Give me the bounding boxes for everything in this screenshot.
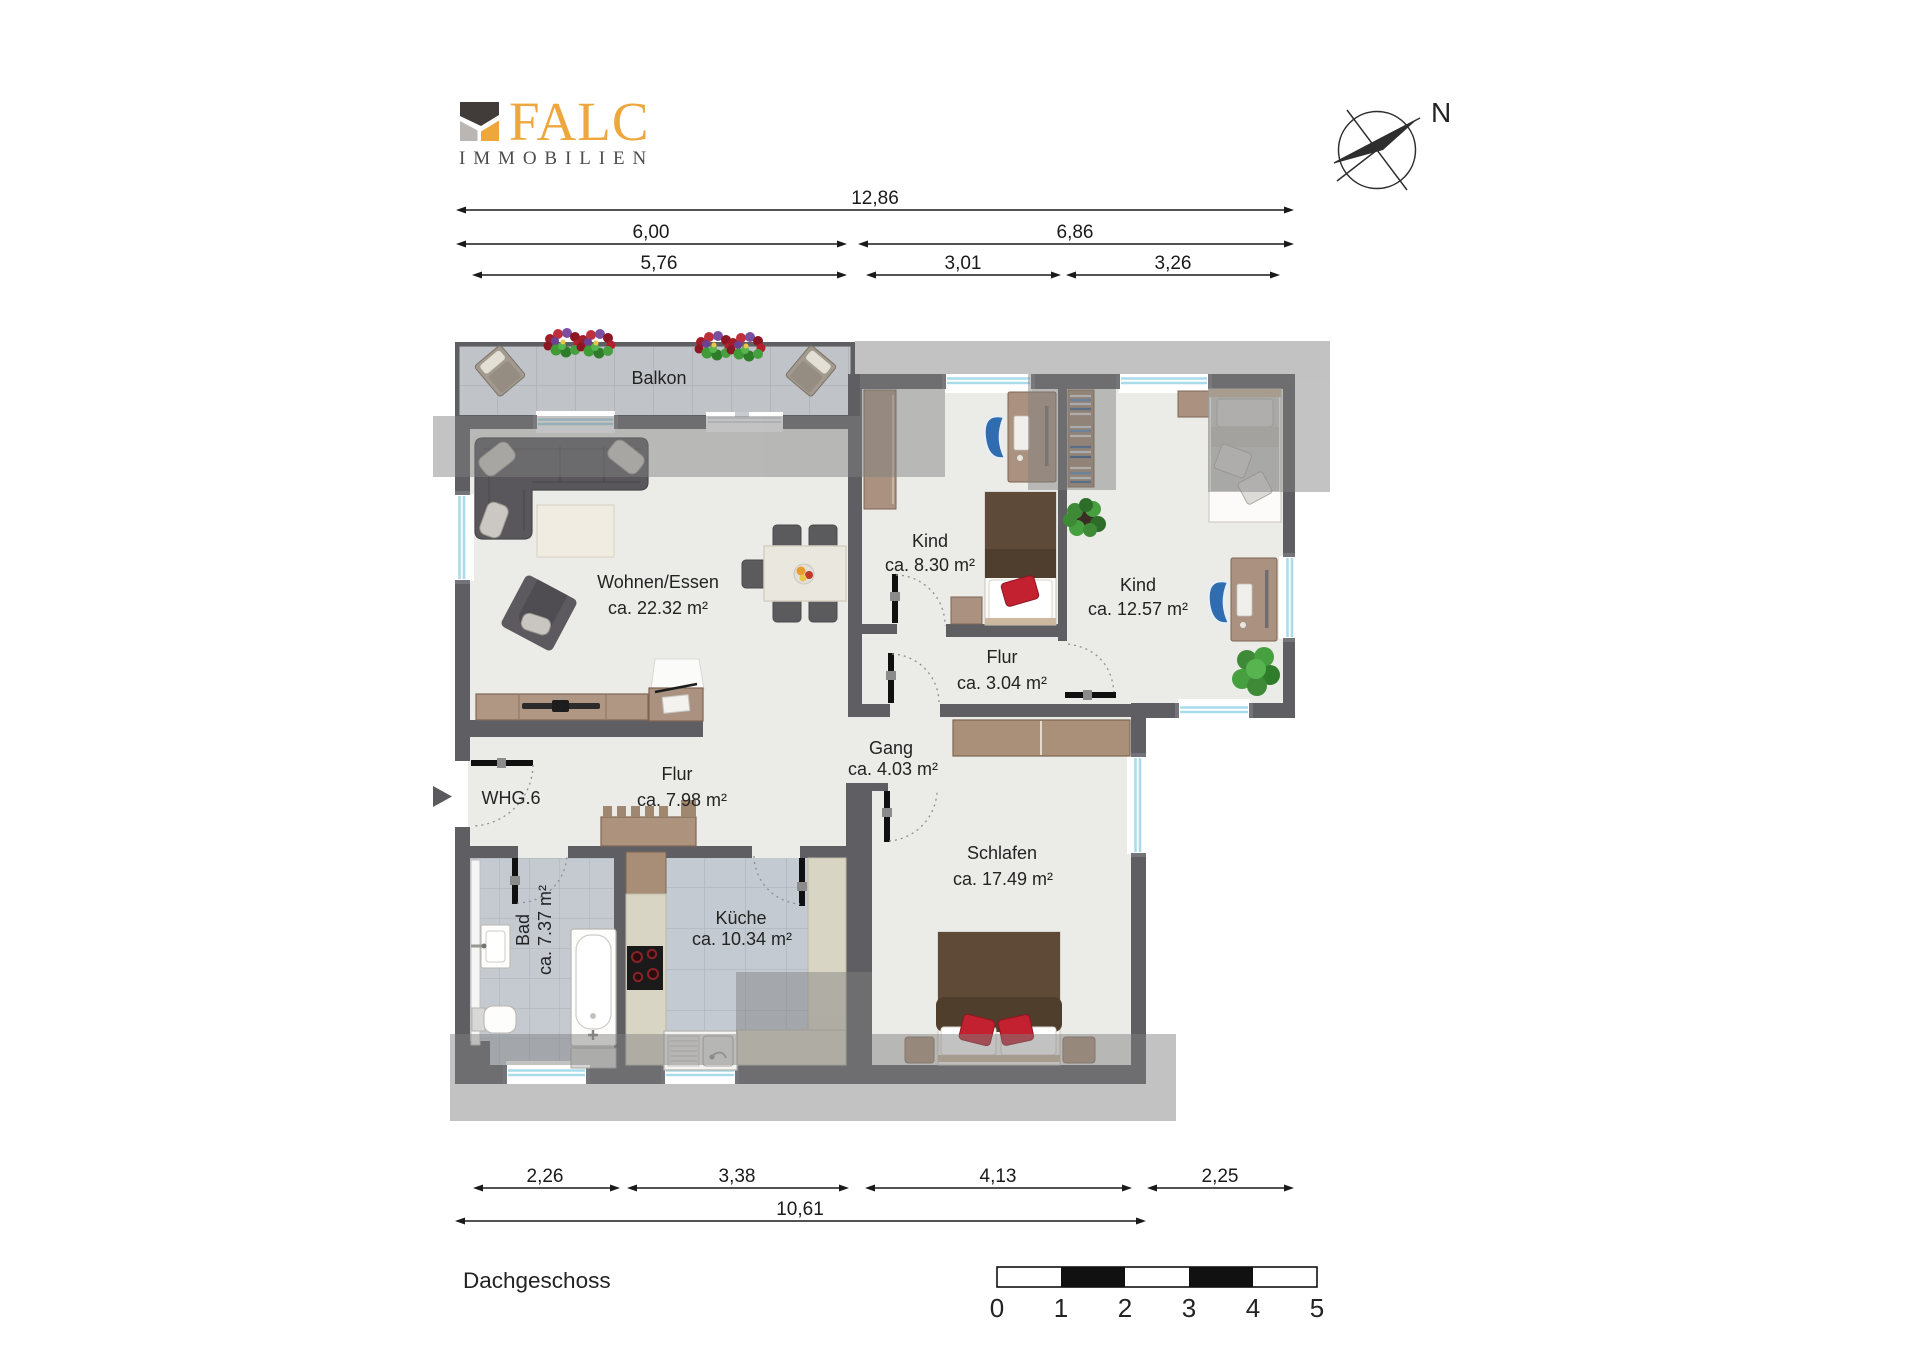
svg-text:ca. 7.98 m²: ca. 7.98 m² [637,790,727,810]
svg-text:10,61: 10,61 [776,1199,824,1220]
svg-text:5: 5 [1310,1293,1324,1323]
svg-text:Dachgeschoss: Dachgeschoss [463,1268,611,1293]
svg-text:ca. 7.37 m²: ca. 7.37 m² [535,885,555,975]
svg-text:3: 3 [1182,1293,1196,1323]
svg-text:Flur: Flur [987,647,1018,667]
svg-text:WHG.6: WHG.6 [481,788,540,808]
svg-text:ca. 8.30 m²: ca. 8.30 m² [885,555,975,575]
svg-text:0: 0 [990,1293,1004,1323]
svg-text:Wohnen/Essen: Wohnen/Essen [597,572,719,592]
svg-text:Gang: Gang [869,738,913,758]
svg-text:2: 2 [1118,1293,1132,1323]
svg-text:4: 4 [1246,1293,1260,1323]
svg-text:4,13: 4,13 [980,1166,1017,1187]
svg-text:6,86: 6,86 [1057,222,1094,243]
svg-text:N: N [1431,97,1451,128]
svg-text:Kind: Kind [1120,575,1156,595]
svg-text:ca. 22.32 m²: ca. 22.32 m² [608,598,708,618]
svg-text:Flur: Flur [662,764,693,784]
svg-text:2,26: 2,26 [527,1166,564,1187]
svg-text:Bad: Bad [513,914,533,946]
svg-text:Schlafen: Schlafen [967,843,1037,863]
svg-text:Küche: Küche [715,908,766,928]
svg-text:IMMOBILIEN: IMMOBILIEN [459,148,654,169]
svg-text:ca. 12.57 m²: ca. 12.57 m² [1088,599,1188,619]
svg-text:3,26: 3,26 [1155,253,1192,274]
svg-text:ca. 3.04 m²: ca. 3.04 m² [957,673,1047,693]
svg-text:ca. 4.03 m²: ca. 4.03 m² [848,759,938,779]
svg-text:1: 1 [1054,1293,1068,1323]
svg-text:3,01: 3,01 [945,253,982,274]
svg-text:Kind: Kind [912,531,948,551]
svg-text:2,25: 2,25 [1202,1166,1239,1187]
svg-text:FALC: FALC [509,91,650,152]
svg-text:12,86: 12,86 [851,188,899,209]
svg-text:Balkon: Balkon [631,368,686,388]
svg-text:6,00: 6,00 [633,222,670,243]
svg-text:ca. 17.49 m²: ca. 17.49 m² [953,869,1053,889]
svg-text:5,76: 5,76 [641,253,678,274]
svg-text:3,38: 3,38 [719,1166,756,1187]
svg-text:ca. 10.34 m²: ca. 10.34 m² [692,929,792,949]
